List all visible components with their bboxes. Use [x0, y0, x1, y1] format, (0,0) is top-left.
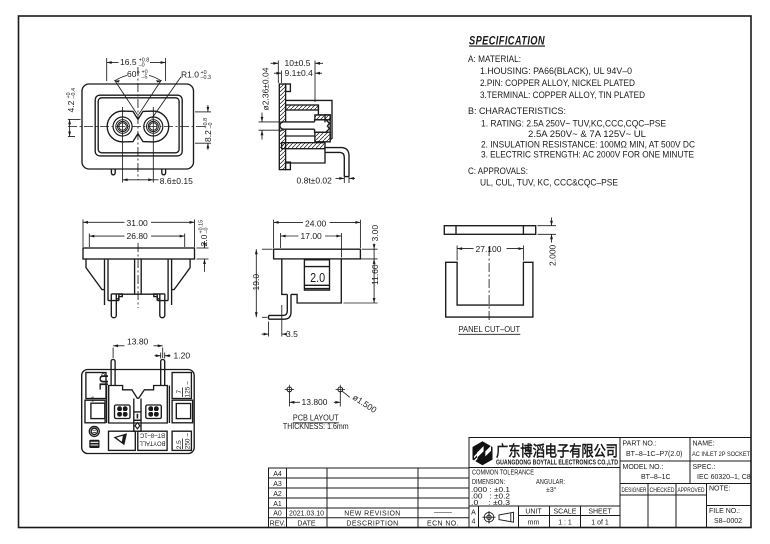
svg-text:250 ~: 250 ~ [184, 433, 191, 450]
svg-text:UNIT: UNIT [525, 509, 542, 516]
svg-text:–5: –5 [142, 74, 148, 80]
svg-text:8.6±0.15: 8.6±0.15 [160, 176, 193, 186]
svg-text:mm: mm [528, 520, 540, 527]
svg-text:24.00: 24.00 [305, 218, 327, 228]
svg-text:4: 4 [472, 519, 476, 526]
svg-text:ANGULAR:: ANGULAR: [536, 479, 565, 486]
svg-text:GUANGDONG BOYTALL ELECTRONICS: GUANGDONG BOYTALL ELECTRONICS CO.,LTD [496, 460, 618, 467]
svg-text:DESIGNER: DESIGNER [622, 487, 647, 494]
svg-text:.0 : ±0.3: .0 : ±0.3 [471, 500, 510, 507]
svg-text:NAME:: NAME: [693, 441, 715, 448]
svg-text:SHEET: SHEET [588, 509, 612, 516]
svg-text:125 ~: 125 ~ [184, 381, 191, 398]
svg-text:DIMENSION:: DIMENSION: [472, 479, 505, 486]
svg-text:DATE: DATE [297, 521, 315, 528]
svg-text:IEC 60320–1, C8: IEC 60320–1, C8 [697, 474, 751, 481]
svg-text:3.5: 3.5 [286, 329, 298, 339]
svg-text:0.8t±0.02: 0.8t±0.02 [297, 176, 333, 186]
svg-text:SPEC.:: SPEC.: [693, 464, 716, 471]
svg-text:–0.3: –0.3 [201, 75, 212, 81]
svg-text:CHECKED: CHECKED [650, 487, 675, 494]
svg-text:11.60: 11.60 [370, 264, 380, 285]
svg-text:13.80: 13.80 [127, 336, 149, 346]
svg-text:19.0: 19.0 [251, 274, 261, 291]
svg-text:3. ELECTRIC STRENGTH: AC 2: 3. ELECTRIC STRENGTH: AC 2000V FOR ONE M… [481, 150, 694, 161]
svg-text:NOTE:: NOTE: [709, 486, 730, 493]
svg-text:3.00: 3.00 [370, 225, 380, 242]
svg-text:–0: –0 [139, 63, 145, 69]
svg-text:REV.: REV. [270, 521, 286, 528]
svg-text:1 : 1: 1 : 1 [558, 520, 572, 527]
svg-text:–0: –0 [208, 123, 214, 129]
svg-text:广东博滔电子有限公司: 广东博滔电子有限公司 [496, 442, 618, 460]
svg-text:DESCRIPTION: DESCRIPTION [346, 521, 398, 528]
svg-text:2.5A 250V~ & 7A 125V~ UL: 2.5A 250V~ & 7A 125V~ UL [528, 129, 647, 140]
svg-text:1.20: 1.20 [174, 351, 191, 361]
svg-text:4.2: 4.2 [66, 100, 76, 112]
svg-text:2021.03.10: 2021.03.10 [289, 511, 324, 518]
svg-text:FILE NO.:: FILE NO.: [709, 508, 740, 515]
svg-text:26.80: 26.80 [127, 231, 149, 241]
svg-text:B: CHARACTERISTICS:: B: CHARACTERISTICS: [468, 106, 566, 117]
svg-text:1.HOUSING: PA66(BLACK), UL: 1.HOUSING: PA66(BLACK), UL 94V–0 [480, 66, 632, 77]
svg-text:31.00: 31.00 [127, 218, 149, 228]
svg-text:ECN NO.: ECN NO. [427, 521, 459, 528]
svg-text:S8–0002: S8–0002 [714, 518, 742, 525]
svg-text:C: APPROVALS:: C: APPROVALS: [468, 166, 528, 177]
svg-text:1 of 1: 1 of 1 [591, 520, 609, 527]
svg-text:–0: –0 [204, 228, 210, 234]
svg-text:A2: A2 [273, 491, 282, 498]
svg-text:AC INLET 2P SOCKET: AC INLET 2P SOCKET [692, 451, 750, 458]
svg-text:SPECIFICATION: SPECIFICATION [469, 36, 545, 48]
svg-text:2.0: 2.0 [310, 270, 325, 285]
svg-text:2.PIN: COPPER ALLOY, NICKEL: 2.PIN: COPPER ALLOY, NICKEL PLATED [480, 78, 635, 89]
svg-text:UL: UL [97, 375, 111, 390]
svg-text:A: MATERIAL:: A: MATERIAL: [468, 54, 521, 65]
svg-text:7: 7 [176, 390, 183, 394]
svg-text:27.100: 27.100 [476, 244, 502, 254]
svg-text:us: us [91, 397, 96, 403]
svg-text:60°: 60° [127, 69, 140, 79]
svg-text:–0.4: –0.4 [71, 88, 77, 99]
svg-text:17.00: 17.00 [301, 231, 323, 241]
svg-text:1. RATING: 2.5A 250V~ TUV,: 1. RATING: 2.5A 250V~ TUV,KC,CCC,CQC–PSE [481, 119, 666, 130]
svg-text:9.1±0.4: 9.1±0.4 [285, 68, 314, 78]
svg-text:A4: A4 [273, 471, 282, 478]
svg-text:THICKNESS: 1.6mm: THICKNESS: 1.6mm [283, 421, 349, 431]
svg-text:A1: A1 [273, 501, 282, 508]
svg-text:16.5: 16.5 [120, 57, 137, 67]
svg-text:A3: A3 [273, 481, 282, 488]
svg-text:2.0: 2.0 [199, 234, 209, 246]
svg-text:13.800: 13.800 [302, 397, 328, 407]
svg-text:BOYTALL: BOYTALL [139, 440, 165, 447]
svg-text:BT–8–1C: BT–8–1C [641, 474, 671, 481]
svg-text:A0: A0 [273, 511, 282, 518]
svg-text:R1.0: R1.0 [181, 69, 199, 79]
svg-text:3.TERMINAL: COPPER ALLOY, T: 3.TERMINAL: COPPER ALLOY, TIN PLATED [480, 90, 645, 101]
svg-text:NEW REVISION: NEW REVISION [344, 511, 401, 518]
svg-text:2.5: 2.5 [176, 440, 183, 449]
svg-text:2.000: 2.000 [548, 244, 558, 266]
svg-text:MODEL NO.:: MODEL NO.: [623, 464, 664, 471]
svg-text:ø2.36±0.04: ø2.36±0.04 [261, 67, 271, 110]
svg-text:BT–8–1C: BT–8–1C [140, 431, 165, 438]
svg-text:SCALE: SCALE [554, 509, 577, 516]
svg-text:PART NO.:: PART NO.: [623, 441, 657, 448]
svg-text:A: A [471, 510, 476, 517]
svg-text:8.2: 8.2 [203, 130, 213, 142]
svg-text:PANEL CUT–OUT: PANEL CUT–OUT [459, 324, 520, 334]
svg-text:——–: ——– [434, 509, 452, 516]
svg-text:10±0.5: 10±0.5 [285, 58, 311, 68]
svg-text:UL, CUL, TUV, KC, CCC&CQC–: UL, CUL, TUV, KC, CCC&CQC–PSE [480, 178, 618, 189]
svg-text:COMMON TOLERANCE: COMMON TOLERANCE [472, 470, 534, 477]
svg-text:APPROVED: APPROVED [678, 487, 705, 494]
svg-text:BT–8–1C–P7(2.0): BT–8–1C–P7(2.0) [626, 451, 682, 458]
svg-text:±3°: ±3° [546, 486, 557, 494]
